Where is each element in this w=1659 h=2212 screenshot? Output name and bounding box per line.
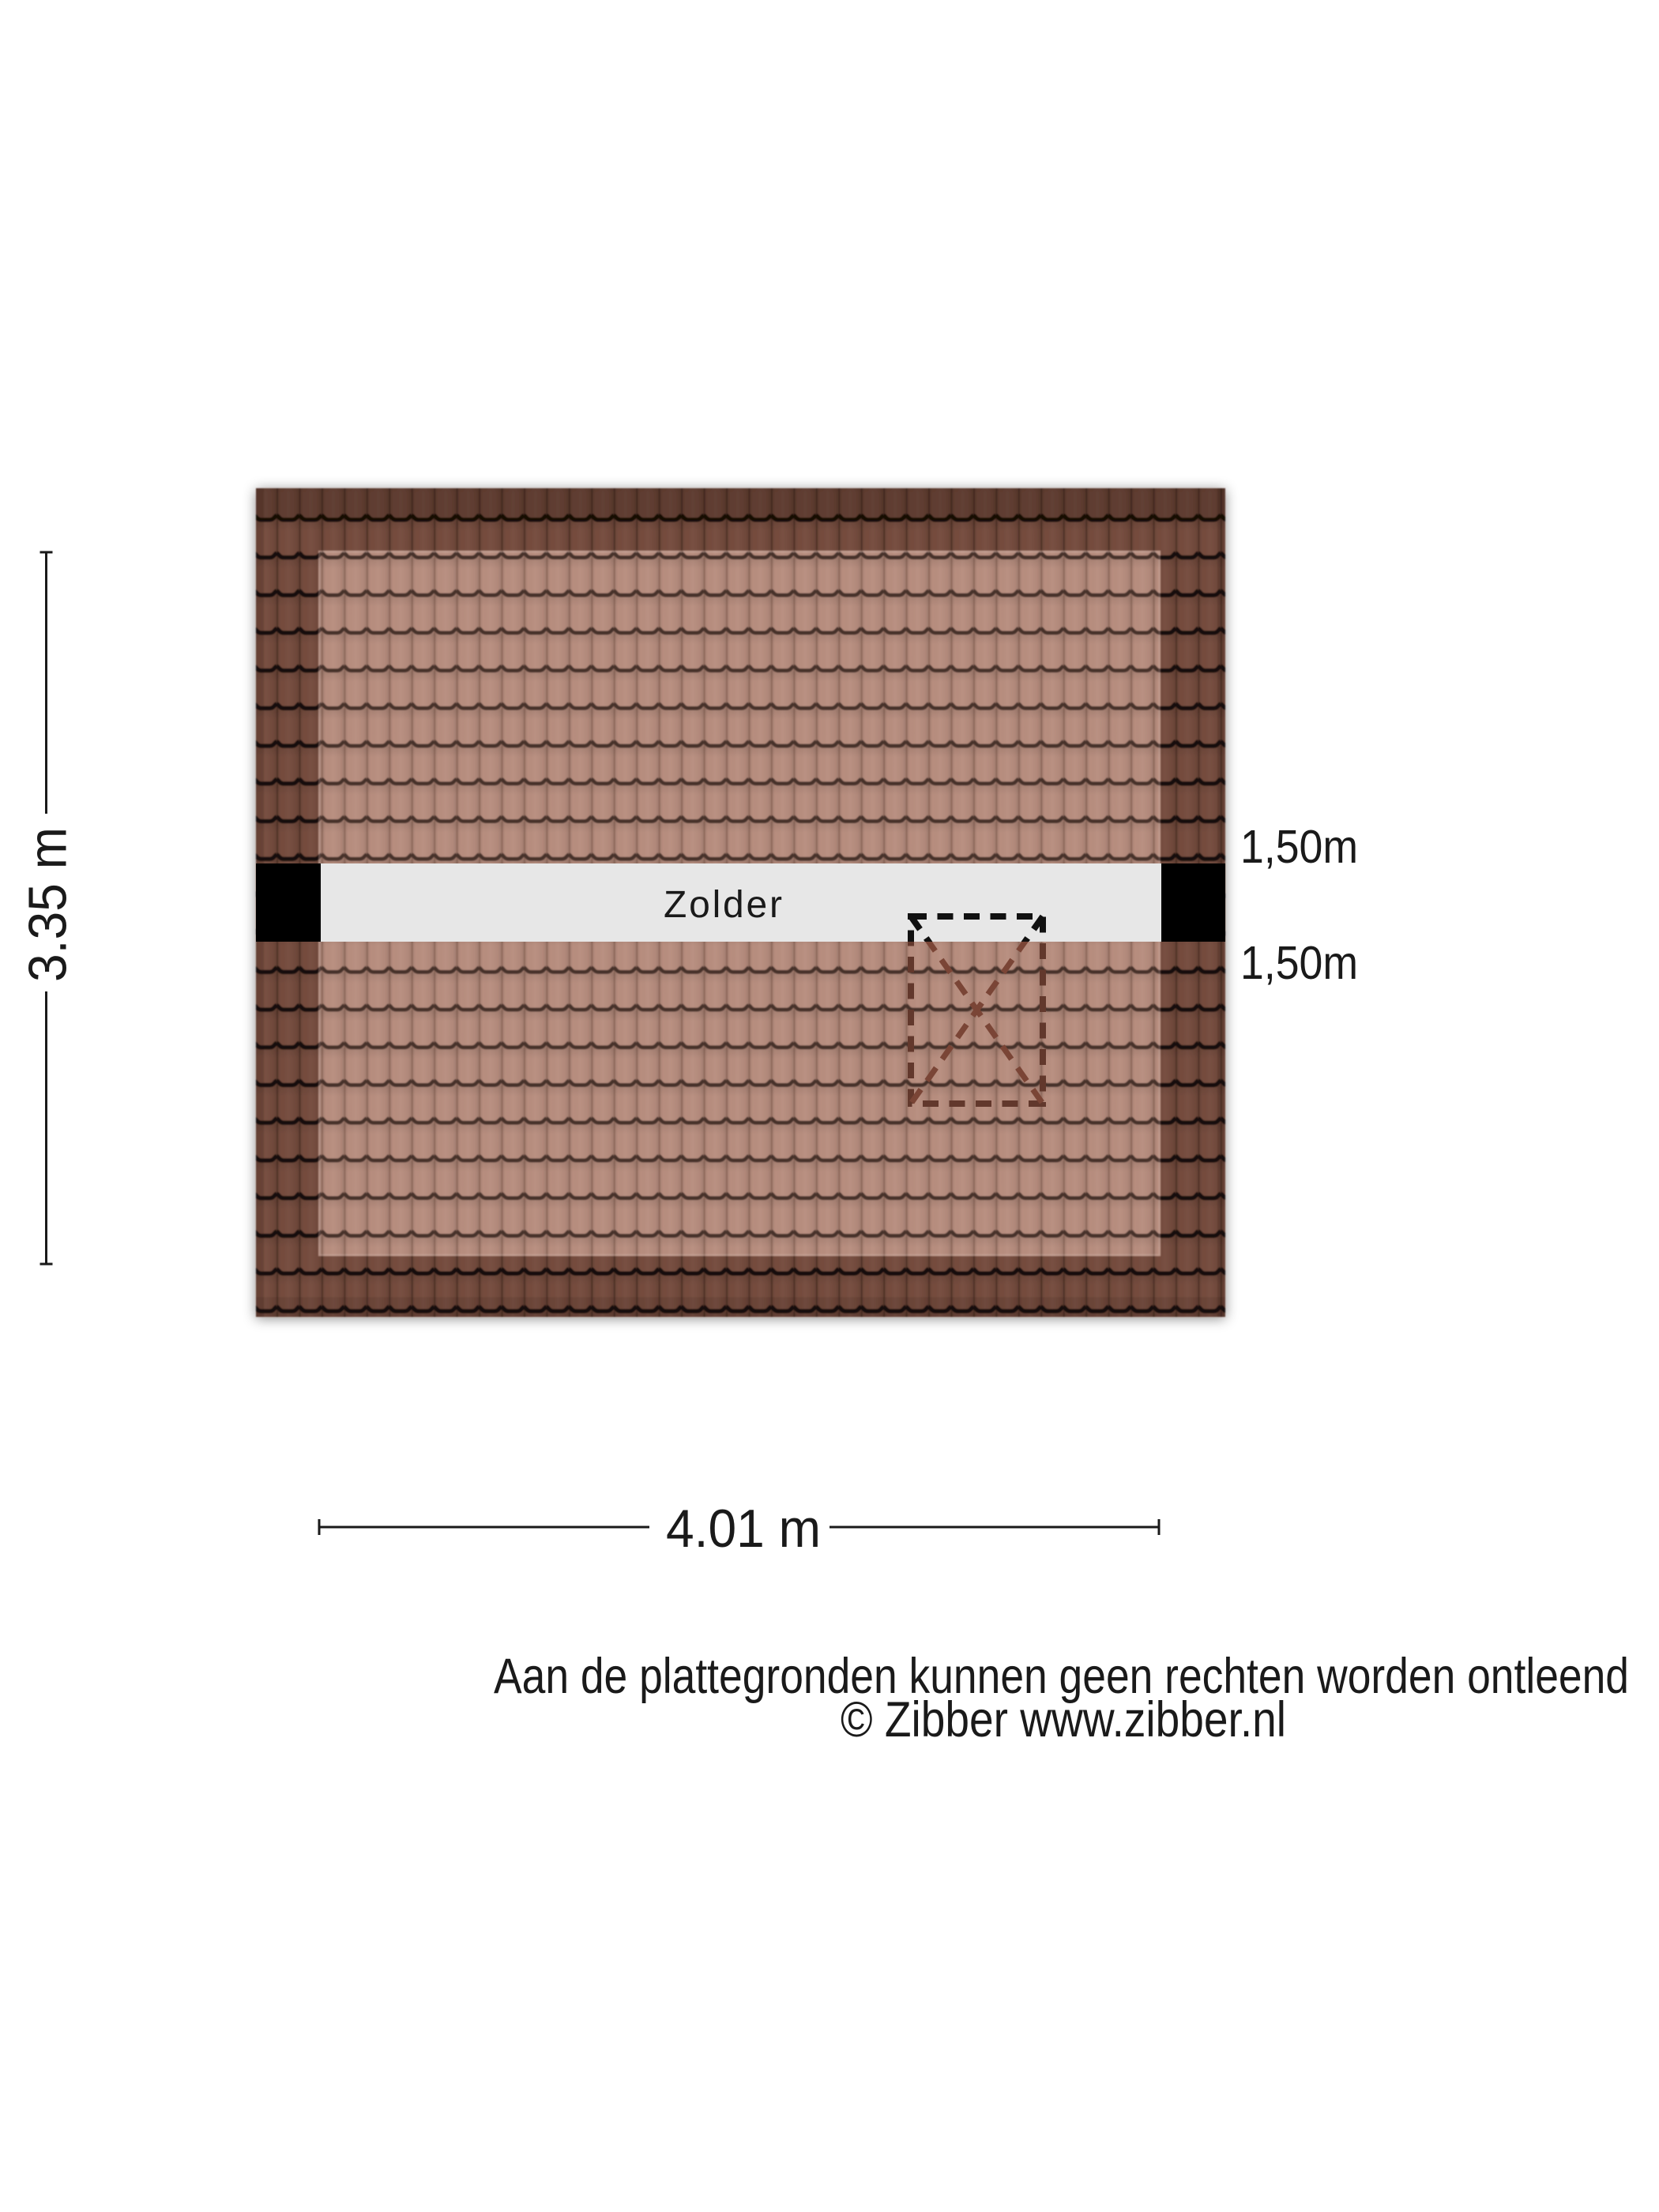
svg-text:3.35 m: 3.35 m [18,827,78,982]
svg-text:4.01 m: 4.01 m [666,1499,821,1559]
svg-text:1,50m: 1,50m [1240,821,1358,873]
svg-text:Zolder: Zolder [664,884,782,926]
svg-text:1,50m: 1,50m [1240,937,1358,989]
svg-text:© Zibber www.zibber.nl: © Zibber www.zibber.nl [841,1692,1286,1747]
